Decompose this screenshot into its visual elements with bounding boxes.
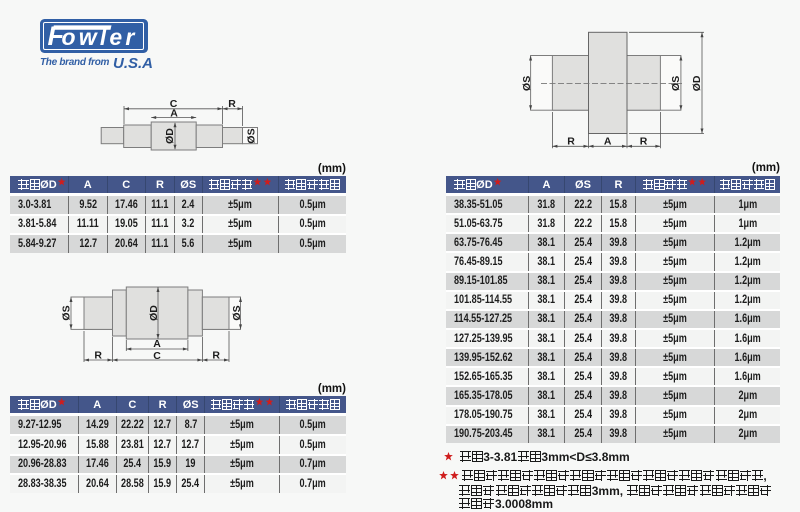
svg-text:ØD: ØD: [691, 75, 703, 91]
svg-text:ØS: ØS: [61, 305, 73, 320]
svg-text:A: A: [604, 136, 612, 148]
svg-text:A: A: [153, 338, 161, 350]
svg-text:ØS: ØS: [670, 76, 682, 91]
svg-text:A: A: [170, 108, 178, 120]
svg-text:R: R: [228, 98, 236, 110]
svg-text:R: R: [640, 136, 648, 148]
svg-text:ØS: ØS: [231, 305, 243, 320]
svg-text:C: C: [153, 350, 161, 362]
svg-text:R: R: [94, 350, 102, 362]
svg-text:R: R: [212, 350, 220, 362]
svg-text:ØS: ØS: [521, 76, 533, 91]
svg-text:ØD: ØD: [164, 128, 176, 144]
svg-text:ØD: ØD: [148, 305, 160, 321]
svg-text:R: R: [567, 136, 575, 148]
svg-text:ØS: ØS: [245, 128, 257, 143]
